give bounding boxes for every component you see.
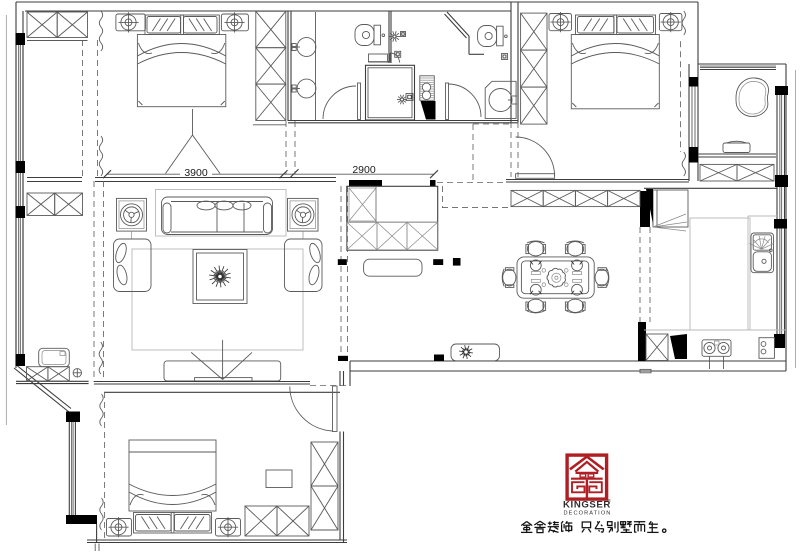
svg-text:KINGSER: KINGSER (563, 500, 611, 511)
svg-text:DECORATION: DECORATION (564, 511, 612, 517)
svg-text:2900: 2900 (352, 164, 376, 176)
svg-text:3900: 3900 (184, 167, 208, 179)
